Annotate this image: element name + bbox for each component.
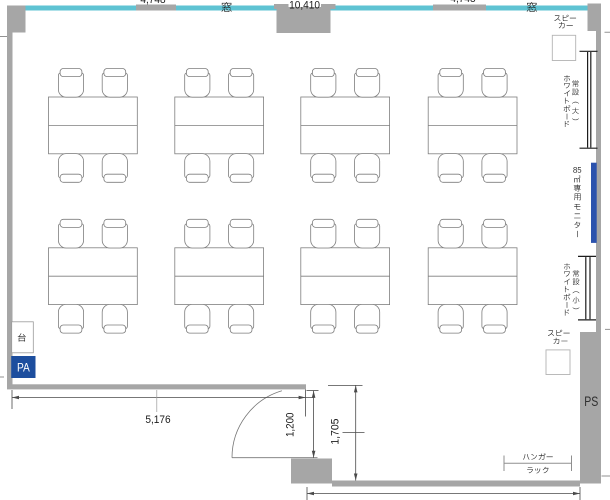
svg-text:1,200: 1,200 (285, 412, 297, 437)
svg-text:1,705: 1,705 (329, 419, 341, 445)
svg-text:4,748: 4,748 (450, 0, 475, 5)
svg-text:5,176: 5,176 (145, 413, 170, 425)
svg-text:4,748: 4,748 (140, 0, 165, 6)
svg-text:10,410: 10,410 (289, 0, 320, 12)
svg-text:PA: PA (17, 362, 30, 375)
svg-text:PS: PS (584, 394, 598, 410)
